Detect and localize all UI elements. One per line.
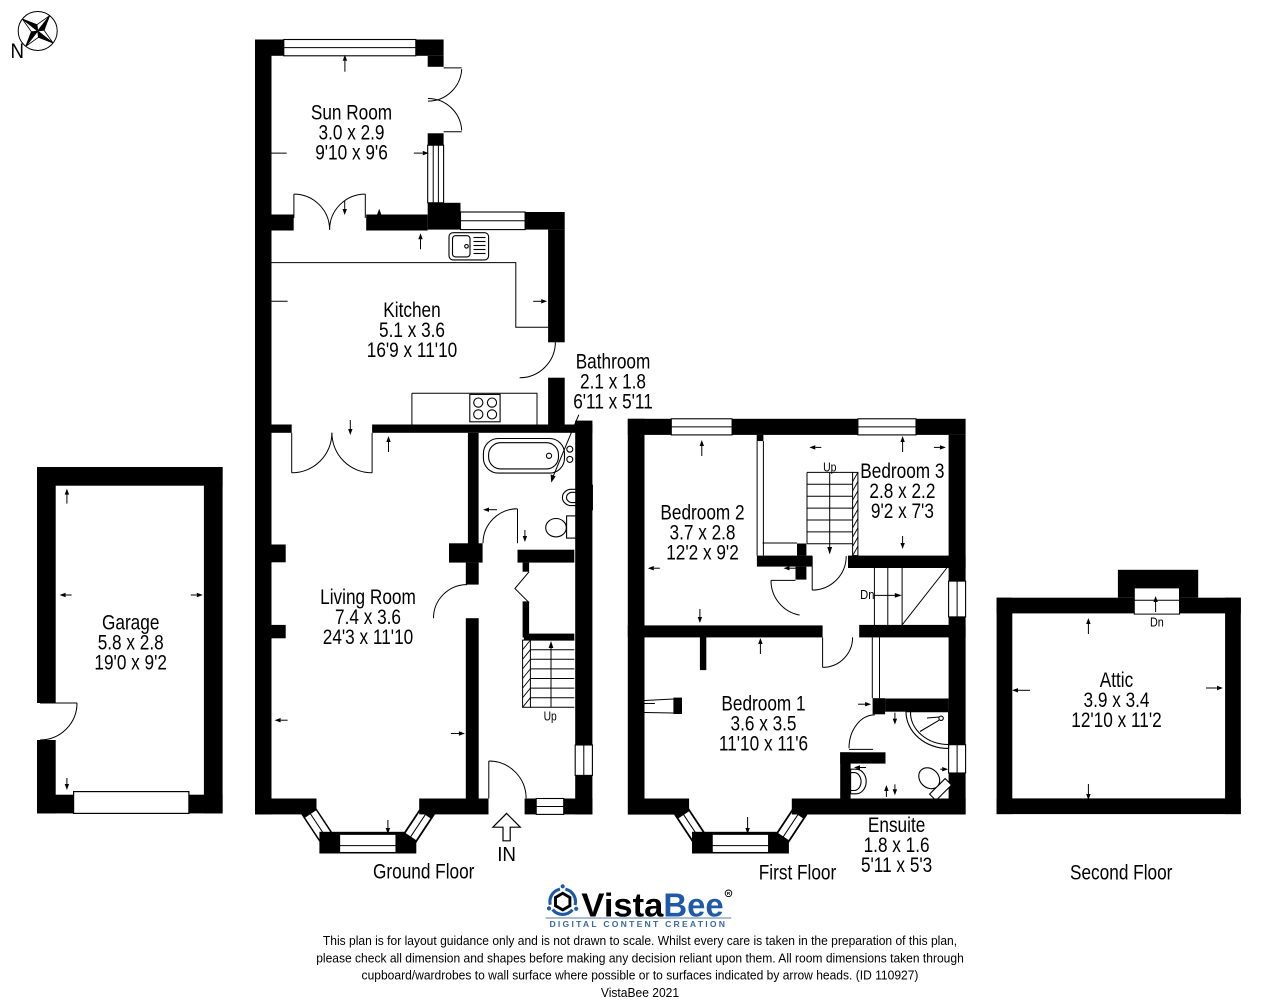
- svg-text:Ground Floor: Ground Floor: [373, 861, 474, 884]
- svg-text:First Floor: First Floor: [759, 861, 837, 884]
- svg-text:N: N: [11, 40, 25, 63]
- svg-text:12'2 x 9'2: 12'2 x 9'2: [666, 542, 739, 565]
- svg-text:VistaBee 2021: VistaBee 2021: [601, 986, 679, 1000]
- svg-text:Up: Up: [544, 709, 557, 724]
- svg-text:cupboard/wardrobes to wall sur: cupboard/wardrobes to wall surface where…: [362, 969, 919, 983]
- svg-text:R: R: [727, 891, 731, 897]
- svg-text:Dn: Dn: [860, 587, 874, 602]
- svg-text:12'10 x 11'2: 12'10 x 11'2: [1071, 709, 1162, 732]
- svg-text:19'0 x 9'2: 19'0 x 9'2: [94, 652, 167, 675]
- svg-text:11'10 x 11'6: 11'10 x 11'6: [719, 732, 808, 755]
- svg-text:9'10 x 9'6: 9'10 x 9'6: [315, 142, 388, 165]
- svg-text:Second Floor: Second Floor: [1070, 862, 1172, 885]
- svg-text:please check all dimension and: please check all dimension and shapes be…: [316, 951, 964, 965]
- svg-text:5'11 x 5'3: 5'11 x 5'3: [861, 854, 932, 877]
- svg-text:Up: Up: [823, 459, 836, 474]
- svg-text:9'2 x 7'3: 9'2 x 7'3: [871, 500, 934, 523]
- svg-text:IN: IN: [497, 844, 516, 866]
- svg-text:Dn: Dn: [1150, 614, 1164, 629]
- svg-text:DIGITAL CONTENT CREATION: DIGITAL CONTENT CREATION: [550, 919, 728, 929]
- svg-text:6'11 x 5'11: 6'11 x 5'11: [573, 391, 653, 414]
- svg-text:This plan is for layout guidan: This plan is for layout guidance only an…: [323, 934, 957, 948]
- svg-text:24'3 x 11'10: 24'3 x 11'10: [323, 626, 414, 649]
- svg-text:16'9 x 11'10: 16'9 x 11'10: [367, 339, 458, 362]
